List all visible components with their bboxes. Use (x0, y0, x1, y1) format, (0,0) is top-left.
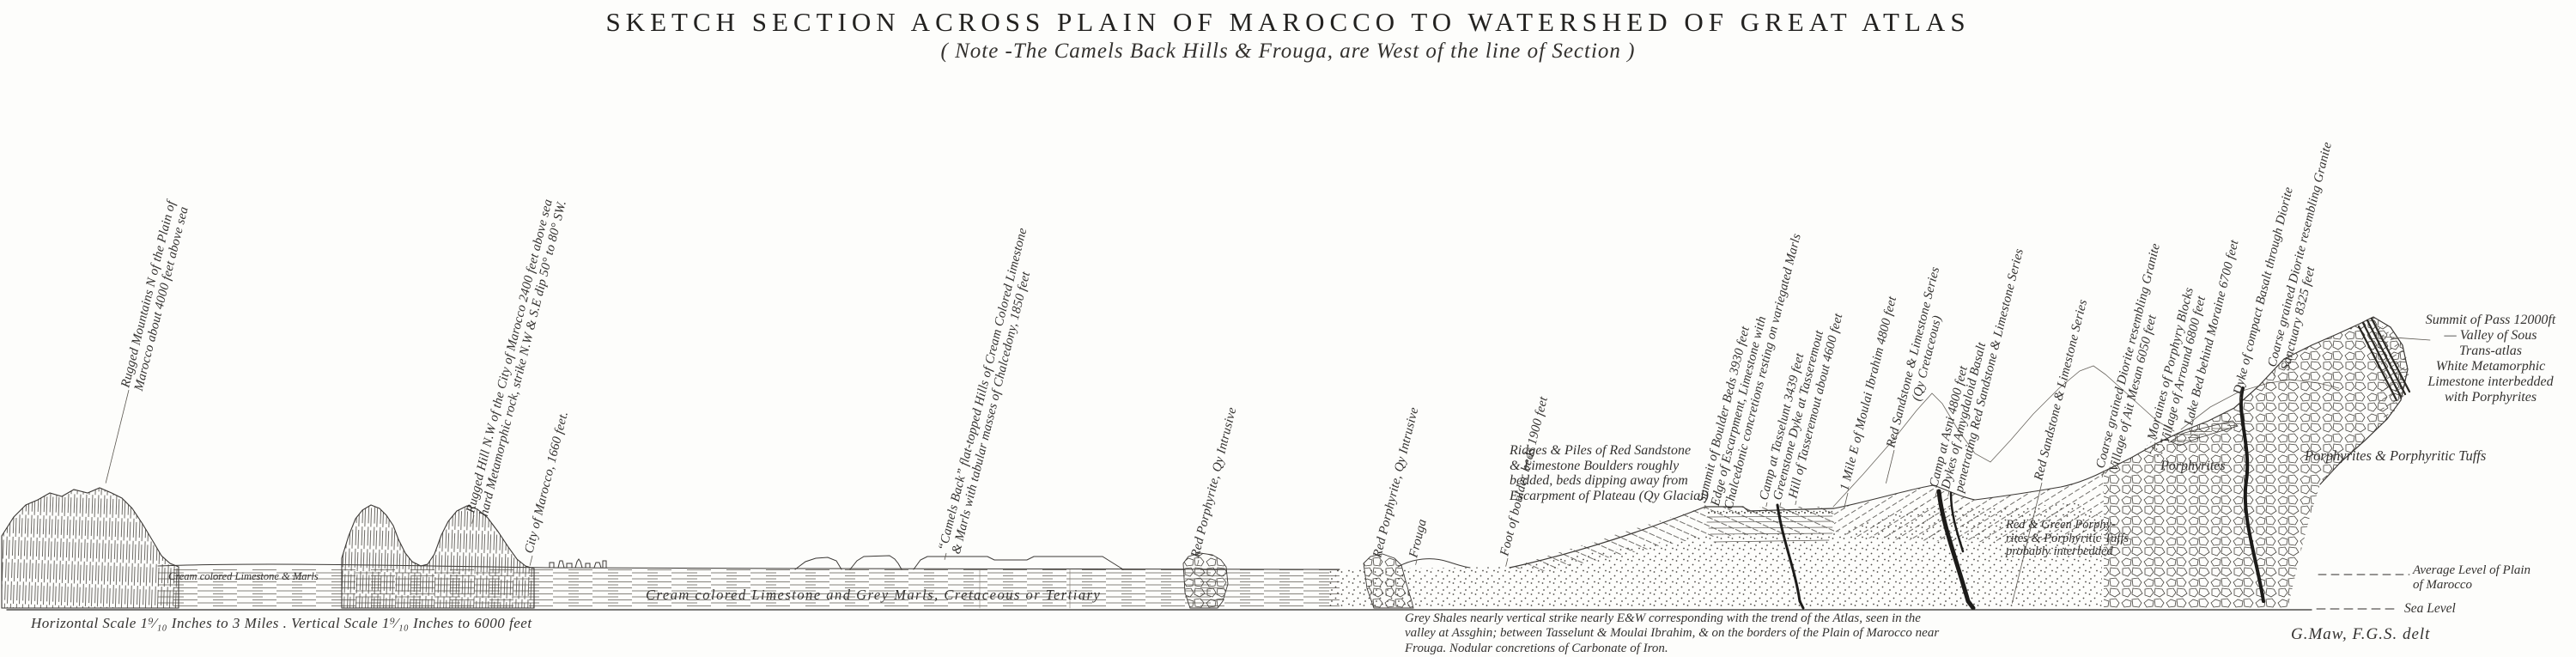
feature-label: 1 Mile E of Moulai Ibrahim 4800 feet (1838, 295, 1899, 492)
label-leader-line (1886, 450, 1894, 484)
label-leader-line (530, 556, 532, 566)
author-signature: G.Maw, F.G.S. delt (2291, 625, 2430, 643)
porphyrites-label: Porphyrites (2160, 459, 2226, 474)
label-leader-line (1766, 502, 1767, 507)
city-skyline (550, 559, 606, 568)
sketch-section-page: SKETCH SECTION ACROSS PLAIN OF MAROCCO T… (0, 0, 2576, 657)
chalcedony-band (1707, 509, 1832, 514)
porphyritic-tuffs-label: Porphyrites & Porphyritic Tuffs (2305, 448, 2486, 464)
feature-label: Rugged Mountains N of the Plain ofMarocc… (118, 198, 192, 393)
scale-note: Horizontal Scale 1⁹⁄₁₀ Inches to 3 Miles… (31, 615, 532, 631)
feature-label: Frouga (1406, 518, 1430, 560)
frouga-hill-line (1398, 559, 1470, 568)
red-green-porphyrites-note: Red & Green Porphy- rites & Porphyritic … (2006, 519, 2129, 559)
plain-marls-label: Cream colored Limestone and Grey Marls, … (646, 587, 1101, 603)
sea-level-label: Sea Level (2404, 601, 2456, 616)
valley-marls-label: Cream colored Limestone & Marls (168, 570, 319, 582)
feature-label: “Camels Back” flat-topped Hills of Cream… (936, 227, 1043, 556)
ridges-note: Ridges & Piles of Red Sandstone & Limest… (1510, 443, 1709, 503)
average-plain-level-label: Average Level of Plain of Marocco (2413, 563, 2530, 592)
left-mountains (2, 488, 179, 608)
feature-label: Red Sandstone & Limestone Series (2032, 298, 2090, 483)
feature-label: Red Porphyrite, Qy Intrusive (1188, 406, 1239, 560)
label-leader-line (106, 390, 129, 484)
section-drawing: Rugged Mountains N of the Plain ofMarocc… (0, 0, 2576, 657)
label-leader-line (1506, 558, 1508, 567)
porphyrite-intrusion-1 (1183, 553, 1228, 608)
rugged-hill (342, 505, 534, 608)
camels-back-mesas (795, 556, 1123, 569)
feature-label: City of Marocco, 1660 feet. (522, 410, 571, 555)
summit-pass-block: Summit of Pass 12000ft — Valley of Sous … (2394, 313, 2576, 405)
label-leader-line (1780, 502, 1781, 507)
label-leader-line (1416, 560, 1417, 565)
label-leader-line (1795, 501, 1796, 505)
feature-label: Dykes of Amygdaloid Basaltpenetrating Re… (1939, 244, 2026, 495)
grey-shales-note: Grey Shales nearly vertical strike nearl… (1405, 611, 2066, 656)
